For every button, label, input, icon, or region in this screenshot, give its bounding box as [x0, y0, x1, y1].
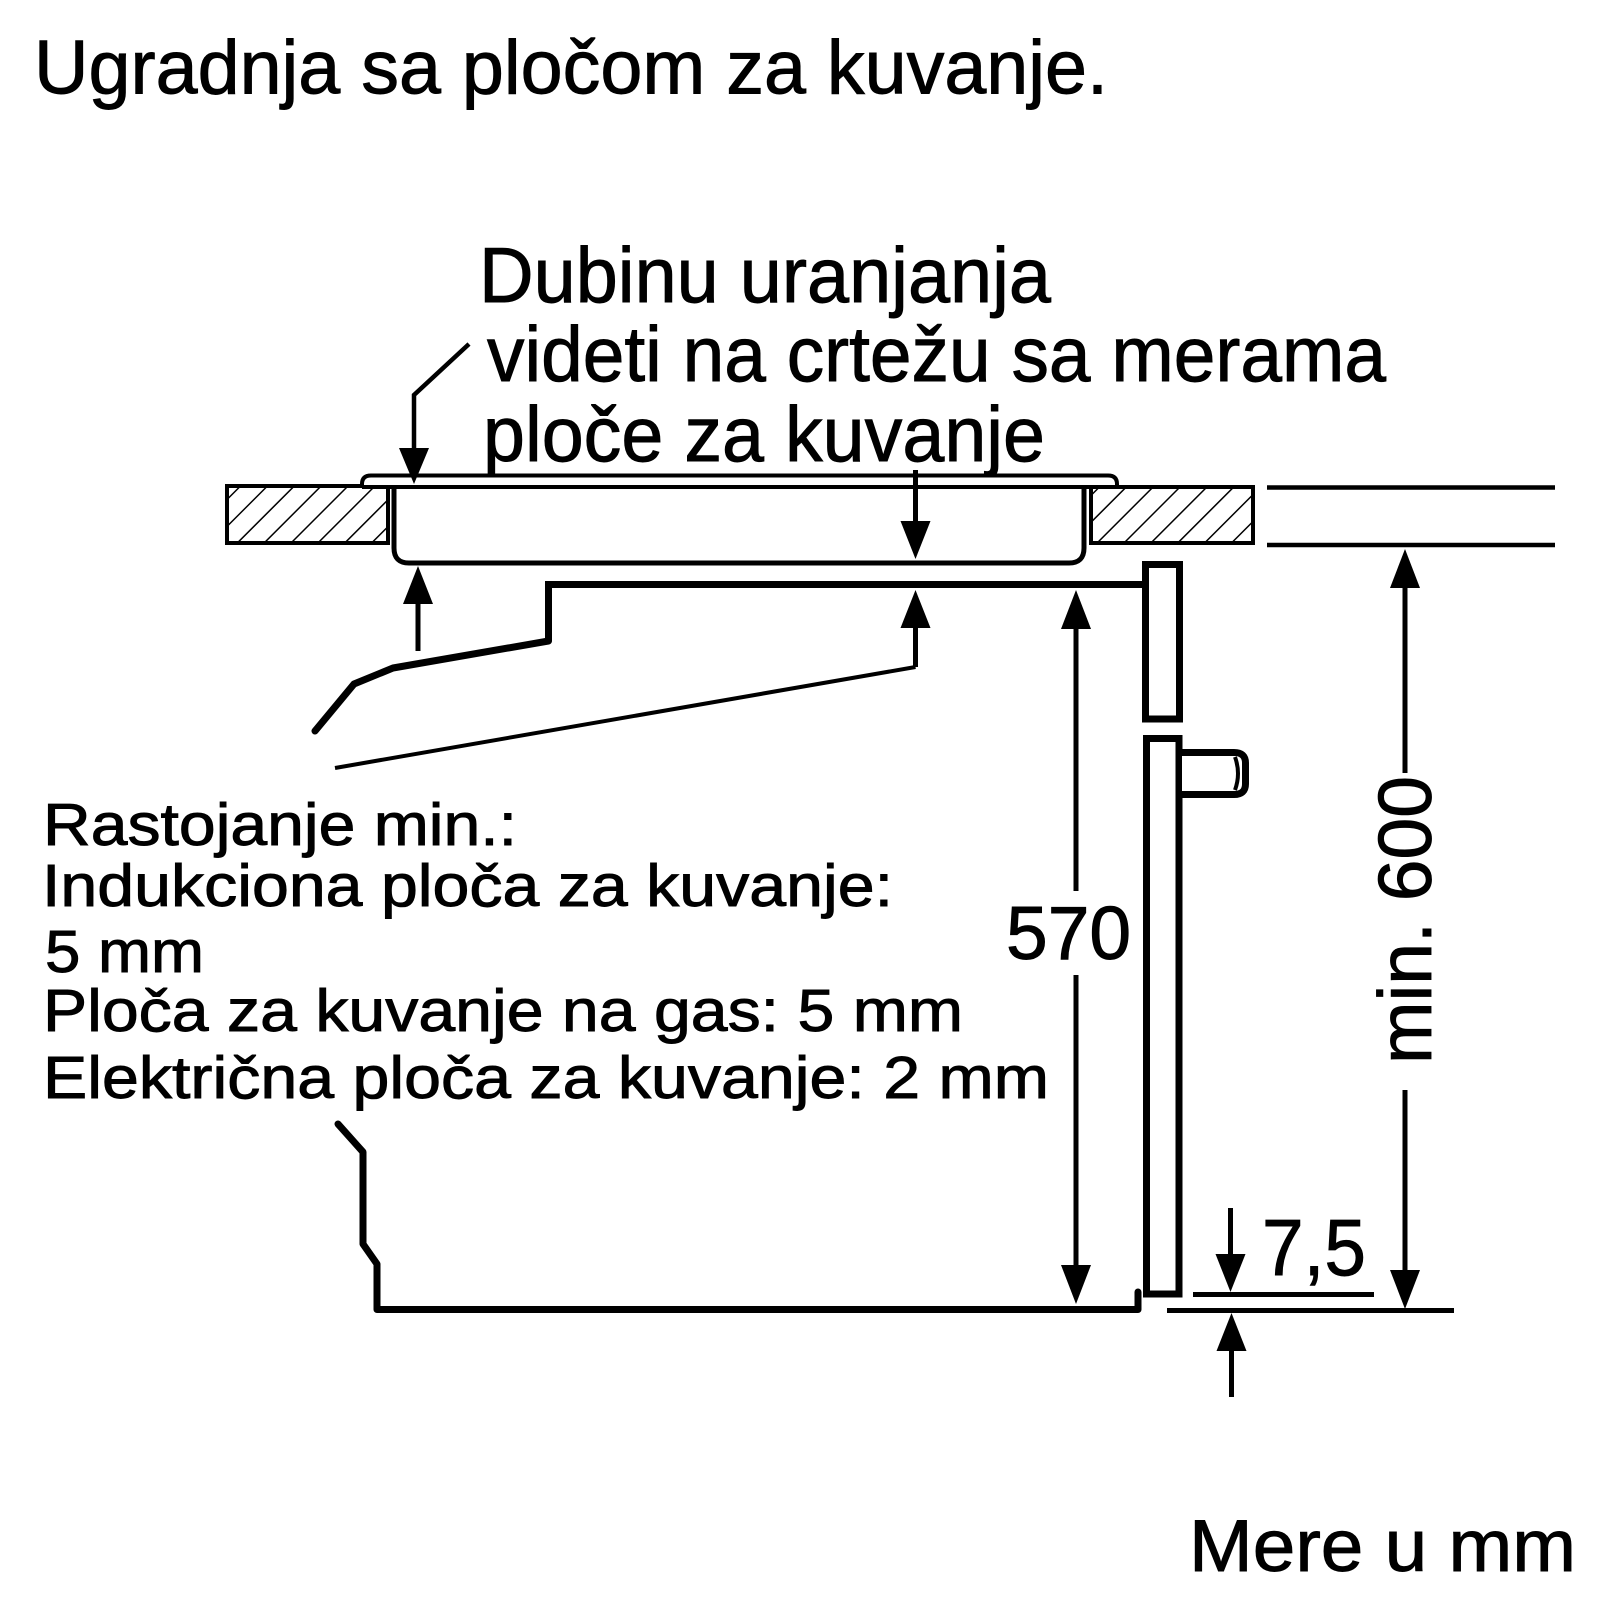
svg-text:Rastojanje min.:: Rastojanje min.:: [43, 792, 517, 858]
svg-text:Indukciona ploča za kuvanje:: Indukciona ploča za kuvanje:: [42, 853, 893, 919]
svg-text:videti na crtežu sa merama: videti na crtežu sa merama: [487, 310, 1387, 398]
svg-text:570: 570: [1006, 891, 1131, 975]
svg-text:min. 600: min. 600: [1363, 776, 1447, 1064]
svg-text:Dubinu uranjanja: Dubinu uranjanja: [479, 231, 1052, 319]
svg-text:7,5: 7,5: [1262, 1203, 1366, 1292]
svg-text:Električna ploča za kuvanje: 2: Električna ploča za kuvanje: 2 mm: [43, 1045, 1049, 1111]
svg-text:Ploča za kuvanje na gas: 5 mm: Ploča za kuvanje na gas: 5 mm: [43, 978, 963, 1044]
svg-text:5 mm: 5 mm: [45, 919, 204, 985]
svg-text:Ugradnja sa pločom za kuvanje.: Ugradnja sa pločom za kuvanje.: [34, 26, 1108, 111]
svg-text:Mere u mm: Mere u mm: [1189, 1506, 1576, 1587]
svg-text:ploče za kuvanje: ploče za kuvanje: [483, 390, 1045, 478]
